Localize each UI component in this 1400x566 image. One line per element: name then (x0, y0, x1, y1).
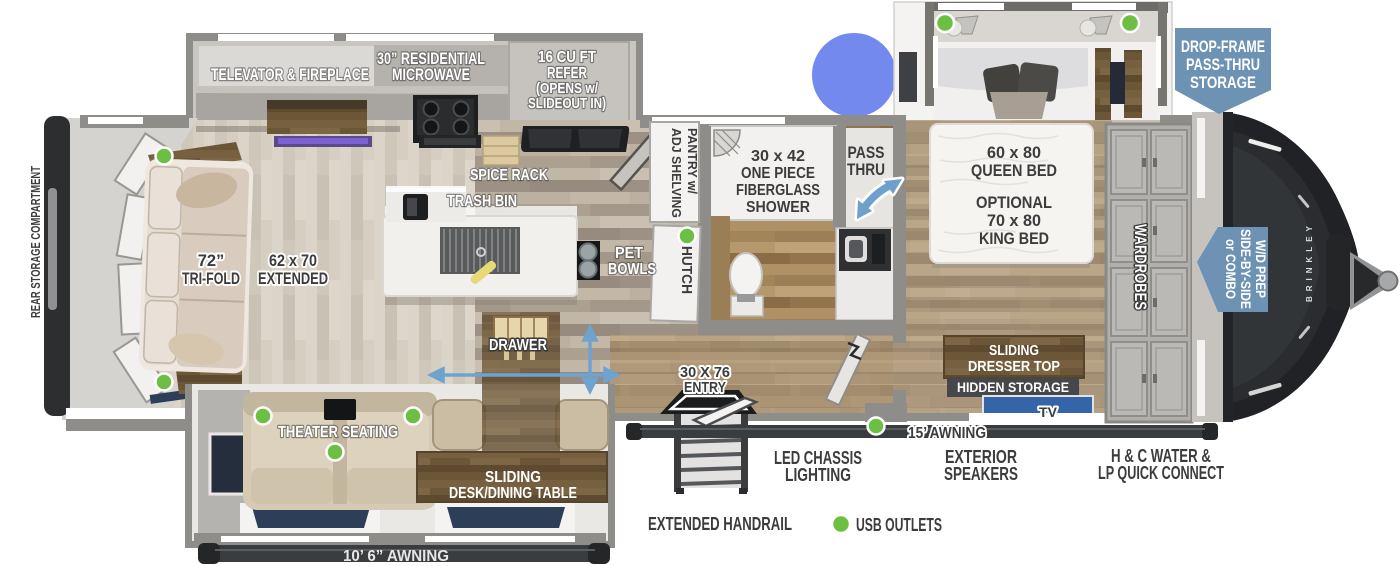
svg-text:or COMBO: or COMBO (1223, 239, 1238, 299)
svg-text:EXTENDED: EXTENDED (258, 270, 328, 288)
svg-text:REFER: REFER (547, 65, 587, 82)
svg-text:EXTENDED HANDRAIL: EXTENDED HANDRAIL (648, 514, 792, 534)
svg-text:TV: TV (1039, 404, 1058, 420)
svg-text:W/D PREP: W/D PREP (1253, 240, 1268, 298)
svg-text:KING BED: KING BED (979, 230, 1049, 248)
svg-text:15’ AWNING: 15’ AWNING (908, 425, 986, 442)
svg-text:TRI-FOLD: TRI-FOLD (182, 270, 240, 288)
svg-text:BOWLS: BOWLS (608, 261, 656, 278)
svg-text:BRINKLEY: BRINKLEY (1305, 221, 1314, 302)
svg-text:DROP-FRAME: DROP-FRAME (1181, 38, 1265, 56)
svg-text:PASS-THRU: PASS-THRU (1186, 56, 1260, 74)
svg-text:SLIDEOUT IN): SLIDEOUT IN) (528, 96, 606, 112)
svg-text:THRU: THRU (847, 160, 885, 179)
svg-text:SHOWER: SHOWER (746, 199, 810, 216)
svg-text:PET: PET (615, 245, 643, 262)
svg-text:TRASH BIN: TRASH BIN (447, 193, 517, 210)
svg-text:62 x 70: 62 x 70 (269, 252, 317, 270)
svg-text:STORAGE: STORAGE (1190, 74, 1256, 92)
svg-text:USB OUTLETS: USB OUTLETS (856, 515, 942, 535)
svg-text:MICROWAVE: MICROWAVE (392, 66, 470, 84)
svg-text:DRESSER TOP: DRESSER TOP (968, 359, 1060, 375)
svg-text:WARDROBES: WARDROBES (1131, 224, 1149, 310)
svg-text:FIBERGLASS: FIBERGLASS (736, 182, 820, 199)
svg-text:(OPENS w/: (OPENS w/ (536, 81, 598, 97)
svg-text:ONE PIECE: ONE PIECE (741, 165, 815, 182)
svg-text:SIDE-BY-SIDE: SIDE-BY-SIDE (1238, 229, 1253, 309)
svg-text:10’ 6” AWNING: 10’ 6” AWNING (343, 548, 449, 565)
svg-text:SLIDING: SLIDING (989, 343, 1039, 359)
svg-text:SPICE RACK: SPICE RACK (470, 167, 549, 184)
svg-text:QUEEN BED: QUEEN BED (971, 162, 1057, 180)
svg-text:60 x 80: 60 x 80 (987, 144, 1041, 162)
svg-text:70 x 80: 70 x 80 (987, 212, 1041, 230)
svg-text:DRAWER: DRAWER (489, 337, 547, 354)
svg-text:ENTRY: ENTRY (684, 380, 726, 396)
svg-text:REAR STORAGE COMPARTMENT: REAR STORAGE COMPARTMENT (29, 166, 43, 318)
svg-text:OPTIONAL: OPTIONAL (976, 194, 1052, 212)
svg-text:HUTCH: HUTCH (678, 246, 695, 294)
svg-text:LP QUICK CONNECT: LP QUICK CONNECT (1098, 463, 1224, 483)
svg-text:PANTRY w/: PANTRY w/ (685, 128, 700, 194)
svg-text:ADJ SHELVING: ADJ SHELVING (669, 128, 684, 218)
svg-text:16 CU FT: 16 CU FT (538, 49, 596, 66)
svg-text:TELEVATOR & FIREPLACE: TELEVATOR & FIREPLACE (211, 66, 369, 84)
svg-text:LIGHTING: LIGHTING (785, 465, 851, 485)
svg-text:HIDDEN STORAGE: HIDDEN STORAGE (957, 379, 1069, 395)
svg-text:SPEAKERS: SPEAKERS (944, 464, 1018, 484)
svg-text:THEATER SEATING: THEATER SEATING (278, 424, 398, 441)
svg-text:30 X 76: 30 X 76 (680, 365, 730, 381)
svg-text:SLIDING: SLIDING (485, 469, 541, 486)
svg-text:30 x 42: 30 x 42 (751, 148, 805, 165)
svg-text:72”: 72” (198, 252, 225, 270)
svg-text:DESK/DINING TABLE: DESK/DINING TABLE (449, 485, 577, 502)
